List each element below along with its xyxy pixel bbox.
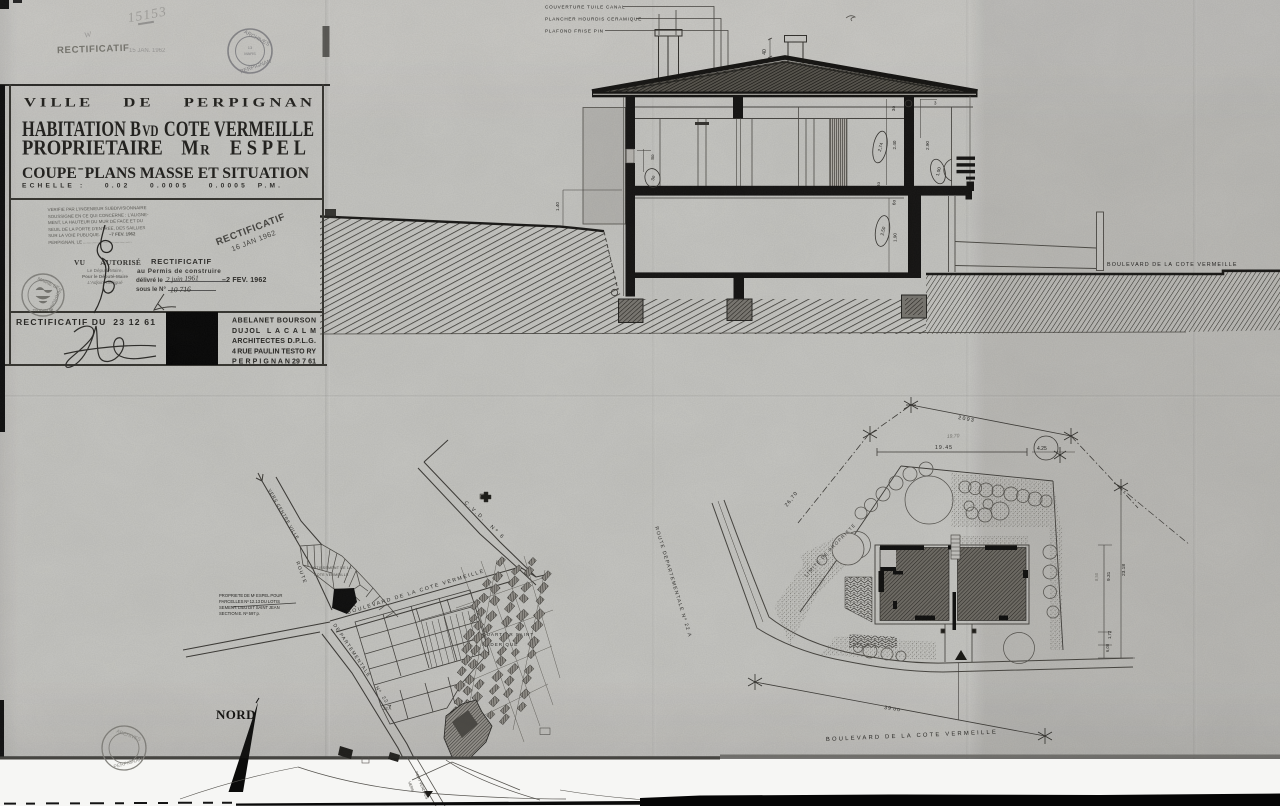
svg-text:3o: 3o bbox=[650, 175, 656, 181]
svg-text:1.40: 1.40 bbox=[555, 202, 560, 211]
svg-text:BOULEVARD DE LA COTE VERMEILLE: BOULEVARD DE LA COTE VERMEILLE bbox=[1107, 262, 1238, 268]
svg-text:LOTISSEMENT DE LA: LOTISSEMENT DE LA bbox=[311, 566, 352, 570]
svg-text:8,50: 8,50 bbox=[1094, 572, 1099, 581]
svg-text:19,70: 19,70 bbox=[947, 433, 960, 440]
svg-text:40: 40 bbox=[762, 49, 768, 55]
svg-text:2,74: 2,74 bbox=[877, 142, 884, 152]
svg-text:2.90: 2.90 bbox=[925, 141, 930, 150]
svg-text:6,00: 6,00 bbox=[1105, 643, 1110, 652]
svg-text:8o: 8o bbox=[650, 154, 655, 160]
svg-text:ABELANET BOURSON: ABELANET BOURSON bbox=[232, 318, 316, 325]
svg-text:23.18: 23.18 bbox=[1121, 564, 1127, 576]
svg-text:ROUTE: ROUTE bbox=[294, 561, 308, 585]
svg-text:PROPRIETE DE Mʳ ESPEL POUR: PROPRIETE DE Mʳ ESPEL POUR bbox=[219, 593, 282, 598]
svg-text:PARCELLES Nº 12.13 DU LOTIS: PARCELLES Nº 12.13 DU LOTIS bbox=[219, 599, 280, 604]
svg-text:ARCHITECTES D.P.L.G.: ARCHITECTES D.P.L.G. bbox=[232, 338, 316, 345]
svg-text:26,70: 26,70 bbox=[784, 490, 800, 508]
svg-text:3o: 3o bbox=[891, 106, 896, 112]
svg-text:COTE VERMEILLE: COTE VERMEILLE bbox=[314, 573, 349, 577]
svg-text:VERS CENTRE VILLE: VERS CENTRE VILLE bbox=[267, 488, 300, 541]
svg-text:COUVERTURE TUILE CANAL: COUVERTURE TUILE CANAL bbox=[545, 5, 625, 10]
svg-text:9.31: 9.31 bbox=[1106, 571, 1112, 581]
svg-text:2.50: 2.50 bbox=[880, 226, 887, 236]
svg-text:22 A: 22 A bbox=[383, 706, 391, 711]
svg-text:SEMENT. LIEU DIT SAINT JEAN: SEMENT. LIEU DIT SAINT JEAN bbox=[219, 605, 280, 610]
svg-text:2.40: 2.40 bbox=[892, 140, 897, 149]
svg-text:3: 3 bbox=[934, 101, 937, 106]
svg-text:PLAFOND FRISE PIN: PLAFOND FRISE PIN bbox=[545, 29, 604, 34]
svg-text:SECTION E. Nº 597 p.: SECTION E. Nº 597 p. bbox=[219, 611, 260, 616]
svg-text:PLANCHER HOURDIS CERAMIQUE: PLANCHER HOURDIS CERAMIQUE bbox=[545, 17, 642, 22]
svg-text:4.25: 4.25 bbox=[1037, 446, 1047, 452]
svg-text:1.90: 1.90 bbox=[893, 233, 898, 242]
svg-text:ROUTE DEPARTEMENTALE Nº 22 A: ROUTE DEPARTEMENTALE Nº 22 A bbox=[653, 526, 693, 639]
svg-text:1.00: 1.00 bbox=[935, 166, 942, 176]
svg-text:1,72: 1,72 bbox=[1107, 630, 1112, 639]
svg-text:2093: 2093 bbox=[958, 415, 976, 424]
svg-text:4 RUE PAULIN TESTO RY: 4 RUE PAULIN TESTO RY bbox=[232, 348, 316, 355]
svg-text:6o: 6o bbox=[892, 200, 897, 206]
svg-text:3o: 3o bbox=[876, 182, 881, 188]
svg-text:19.45: 19.45 bbox=[935, 445, 953, 451]
svg-text:C.V.D. Nº 6: C.V.D. Nº 6 bbox=[463, 500, 506, 541]
svg-text:P E R P I G N A N 29 7 61: P E R P I G N A N 29 7 61 bbox=[232, 359, 316, 366]
svg-text:DUJOL L A C A L M: DUJOL L A C A L M bbox=[232, 328, 316, 335]
